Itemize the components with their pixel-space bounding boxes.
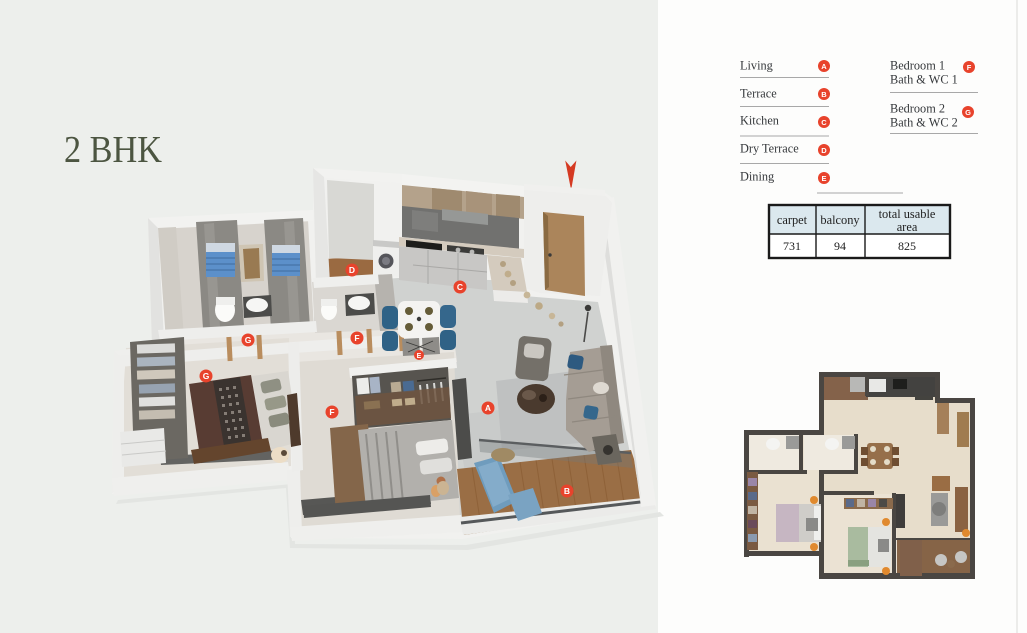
svg-text:F: F xyxy=(967,63,972,72)
svg-text:C: C xyxy=(821,118,827,127)
svg-text:F: F xyxy=(354,333,359,343)
svg-text:E: E xyxy=(417,353,422,360)
svg-text:B: B xyxy=(564,486,570,496)
svg-text:area: area xyxy=(897,220,918,234)
svg-text:Bedroom 1: Bedroom 1 xyxy=(890,59,945,73)
svg-text:Dining: Dining xyxy=(740,170,774,184)
svg-text:D: D xyxy=(349,265,355,275)
svg-text:G: G xyxy=(203,371,210,381)
svg-text:E: E xyxy=(821,174,826,183)
svg-text:Terrace: Terrace xyxy=(740,87,777,101)
svg-text:carpet: carpet xyxy=(777,213,808,227)
svg-text:F: F xyxy=(329,407,334,417)
svg-text:825: 825 xyxy=(898,239,916,253)
svg-text:G: G xyxy=(965,108,971,117)
svg-text:A: A xyxy=(821,62,827,71)
svg-text:B: B xyxy=(821,90,827,99)
svg-text:C: C xyxy=(457,282,463,292)
svg-text:Dry Terrace: Dry Terrace xyxy=(740,142,799,156)
svg-text:94: 94 xyxy=(834,239,846,253)
svg-text:total usable: total usable xyxy=(879,207,936,221)
svg-text:A: A xyxy=(485,403,491,413)
svg-text:Living: Living xyxy=(740,59,773,73)
svg-text:G: G xyxy=(245,335,252,345)
svg-text:Kitchen: Kitchen xyxy=(740,114,779,128)
svg-text:2 BHK: 2 BHK xyxy=(64,129,162,171)
svg-text:Bath & WC 2: Bath & WC 2 xyxy=(890,116,958,130)
svg-text:D: D xyxy=(821,146,827,155)
svg-text:Bath & WC 1: Bath & WC 1 xyxy=(890,73,958,87)
svg-text:731: 731 xyxy=(783,239,801,253)
svg-text:balcony: balcony xyxy=(820,213,860,227)
svg-text:Bedroom 2: Bedroom 2 xyxy=(890,102,945,116)
